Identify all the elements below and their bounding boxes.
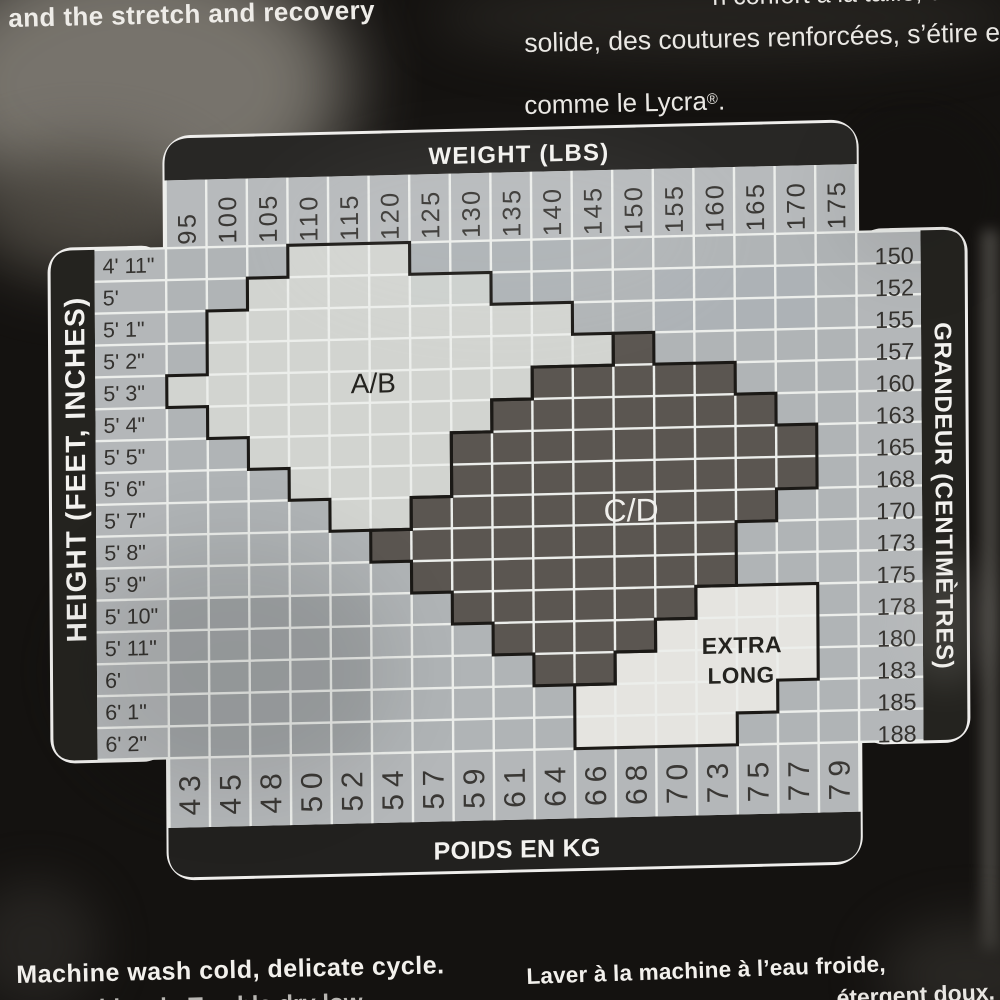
svg-text:HEIGHT (FEET, INCHES): HEIGHT (FEET, INCHES) (59, 296, 92, 642)
svg-text:157: 157 (875, 338, 914, 365)
svg-text:C/D: C/D (603, 492, 658, 529)
svg-text:5' 6": 5' 6" (104, 477, 146, 502)
svg-text:LONG: LONG (708, 662, 775, 689)
svg-text:5' 8": 5' 8" (104, 541, 146, 566)
svg-text:160: 160 (875, 370, 914, 397)
svg-text:75: 75 (742, 755, 775, 803)
svg-text:5' 4": 5' 4" (103, 413, 145, 438)
svg-text:54: 54 (377, 763, 410, 811)
svg-text:155: 155 (875, 306, 914, 333)
svg-text:170: 170 (782, 180, 810, 230)
svg-text:5' 1": 5' 1" (103, 317, 145, 342)
svg-text:79: 79 (823, 753, 856, 801)
svg-text:100: 100 (214, 194, 242, 244)
svg-text:168: 168 (876, 466, 915, 493)
svg-text:68: 68 (620, 757, 653, 805)
svg-text:105: 105 (255, 193, 283, 243)
svg-text:5' 5": 5' 5" (104, 445, 146, 470)
svg-text:5' 2": 5' 2" (103, 349, 145, 374)
svg-text:77: 77 (783, 754, 816, 802)
svg-text:95: 95 (173, 211, 201, 245)
svg-text:73: 73 (702, 755, 735, 803)
svg-text:POIDS EN KG: POIDS EN KG (433, 834, 600, 866)
svg-text:5' 7": 5' 7" (104, 509, 146, 534)
svg-text:185: 185 (877, 689, 916, 716)
svg-text:173: 173 (876, 529, 915, 556)
svg-text:66: 66 (580, 758, 613, 806)
svg-text:52: 52 (336, 764, 369, 812)
svg-text:A/B: A/B (351, 367, 396, 399)
svg-text:165: 165 (876, 434, 915, 461)
svg-text:5' 3": 5' 3" (103, 381, 145, 406)
svg-text:188: 188 (877, 721, 916, 748)
svg-text:165: 165 (742, 181, 770, 231)
svg-text:4' 11": 4' 11" (102, 253, 154, 278)
svg-text:170: 170 (876, 497, 915, 524)
svg-text:EXTRA: EXTRA (702, 631, 783, 659)
svg-text:5': 5' (103, 286, 119, 310)
svg-text:59: 59 (458, 761, 491, 809)
svg-text:64: 64 (539, 759, 572, 807)
svg-text:152: 152 (875, 274, 914, 301)
svg-text:70: 70 (661, 756, 694, 804)
svg-text:61: 61 (499, 760, 532, 808)
svg-text:163: 163 (875, 402, 914, 429)
svg-text:57: 57 (417, 762, 450, 810)
